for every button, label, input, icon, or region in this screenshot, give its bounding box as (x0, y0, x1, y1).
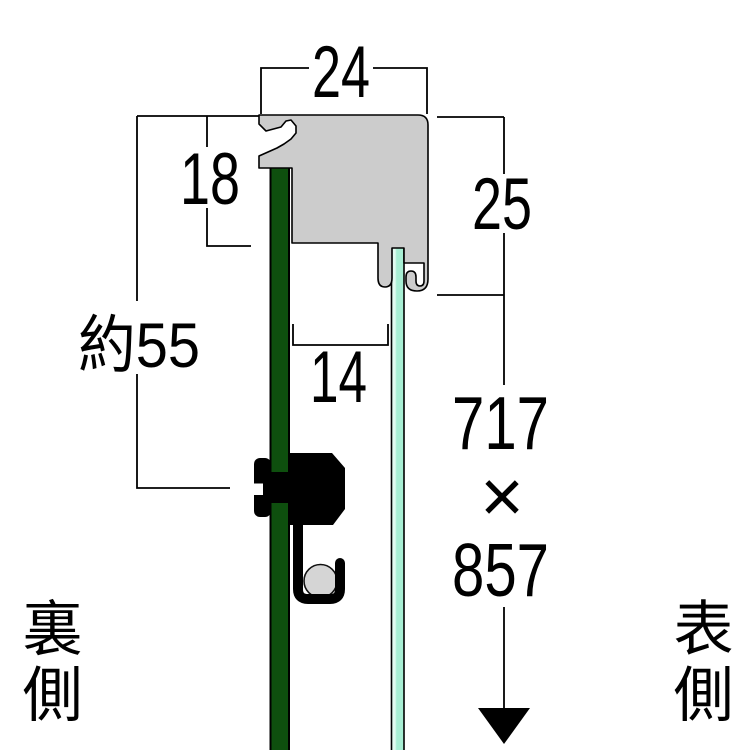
dim-total-55-label: 約55 (78, 311, 200, 381)
size-separator-label: × (480, 454, 524, 538)
bolt-head-slot (251, 484, 263, 496)
dim-height-25-lines (437, 117, 504, 385)
diagram-canvas: 24 18 25 約55 14 717 × 857 (0, 0, 750, 750)
dim-width-24-label: 24 (312, 32, 370, 113)
down-arrowhead-icon (478, 708, 530, 744)
glass-panel (392, 247, 405, 750)
opening-height-label: 857 (452, 528, 549, 612)
dim-height-25-label: 25 (472, 164, 532, 245)
dim-depth-18-label: 18 (180, 139, 240, 220)
hanger-body (289, 453, 345, 525)
roller (304, 565, 337, 598)
hanger-assembly (251, 453, 345, 599)
front-side-label: 表側 (667, 597, 729, 729)
dim-gap-14-label: 14 (310, 337, 367, 418)
opening-width-label: 717 (452, 381, 549, 465)
back-side-label: 裏側 (16, 597, 78, 729)
frame-cross-section-diagram: 24 18 25 約55 14 717 × 857 裏側 表側 (0, 0, 750, 750)
back-board (271, 167, 290, 750)
